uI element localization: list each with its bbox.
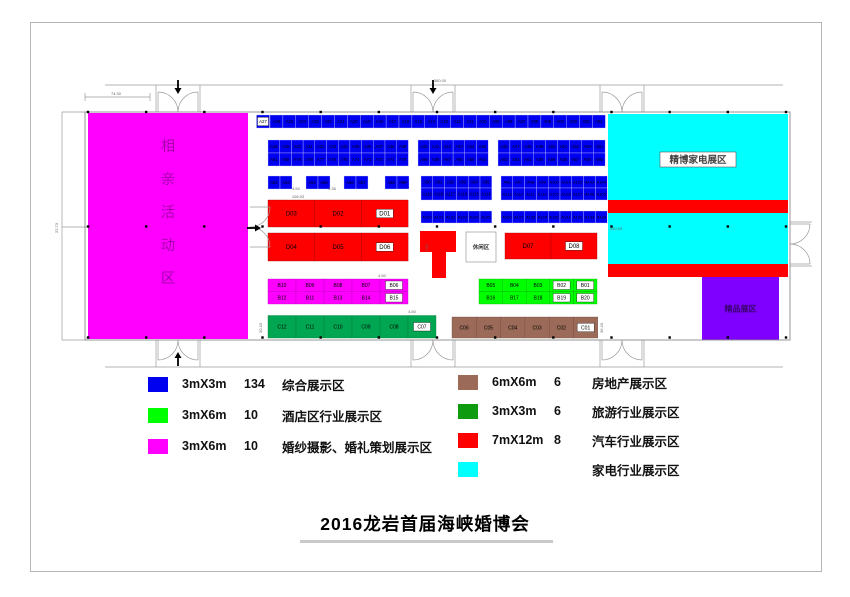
column-dot bbox=[261, 111, 263, 113]
booth-label-A83: A83 bbox=[282, 180, 290, 185]
column-dot bbox=[785, 225, 787, 227]
booth-label-A125: A125 bbox=[481, 214, 491, 219]
booth-label-A47: A47 bbox=[512, 144, 520, 149]
booth-label-A33: A33 bbox=[329, 144, 337, 149]
door-arc bbox=[250, 227, 270, 247]
booth-label-D08: D08 bbox=[568, 244, 580, 250]
booth-label-B01: B01 bbox=[581, 283, 590, 289]
booth-label-A106: A106 bbox=[585, 191, 595, 196]
booth-label-C03: C03 bbox=[532, 325, 541, 331]
booth-label-A18: A18 bbox=[376, 119, 384, 124]
booth-label-A14: A14 bbox=[428, 119, 436, 124]
booth-label-A114: A114 bbox=[481, 192, 491, 197]
column-dot bbox=[203, 336, 205, 338]
zone-label-rest-area: 休闲区 bbox=[472, 243, 490, 251]
legend-swatch bbox=[458, 375, 478, 390]
column-dot bbox=[203, 225, 205, 227]
booth-label-A51: A51 bbox=[560, 144, 568, 149]
booth-label-A29: A29 bbox=[282, 144, 290, 149]
legend-swatch bbox=[148, 377, 168, 392]
booth-label-A73: A73 bbox=[364, 157, 372, 162]
booth-label-A62: A62 bbox=[512, 157, 520, 162]
booth-label-C04: C04 bbox=[508, 325, 517, 331]
booth-label-A49: A49 bbox=[536, 144, 544, 149]
zone-label-matchmaking-hall: 相 bbox=[161, 138, 175, 154]
booth-label-A116: A116 bbox=[458, 192, 468, 197]
legend-booth-count: 10 bbox=[244, 408, 282, 422]
column-dot bbox=[436, 336, 438, 338]
column-dot bbox=[319, 225, 321, 227]
booth-label-C09: C09 bbox=[361, 325, 370, 331]
door-arc bbox=[178, 340, 198, 360]
booth-label-C12: C12 bbox=[277, 325, 286, 331]
expo-floorplan-page: 相亲活动区精品展区休闲区精博家电展区A27A26A25A24A23A22A21A… bbox=[0, 0, 850, 597]
column-dot bbox=[727, 111, 729, 113]
booth-label-A132: A132 bbox=[573, 214, 583, 219]
booth-label-A81: A81 bbox=[270, 157, 278, 162]
booth-label-A99: A99 bbox=[539, 179, 547, 184]
column-dot bbox=[785, 111, 787, 113]
legend-booth-size: 3mX6m bbox=[182, 408, 244, 422]
door-arc bbox=[433, 340, 453, 360]
booth-label-A34: A34 bbox=[340, 144, 348, 149]
legend-zone-label: 家电行业展示区 bbox=[592, 460, 680, 479]
door-arc bbox=[622, 340, 642, 360]
booth-label-A17: A17 bbox=[389, 119, 397, 124]
legend-booth-size: 6mX6m bbox=[492, 375, 554, 389]
booth-label-A126: A126 bbox=[502, 214, 512, 219]
entrance-arrow-icon bbox=[177, 80, 179, 88]
booth-label-A60: A60 bbox=[536, 157, 544, 162]
booth-label-B17: B17 bbox=[510, 296, 519, 302]
door-arc bbox=[158, 92, 178, 112]
booth-label-A43: A43 bbox=[455, 144, 463, 149]
booth-label-A58: A58 bbox=[560, 157, 568, 162]
column-dot bbox=[87, 225, 89, 227]
booth-label-B06: B06 bbox=[390, 283, 399, 289]
booth-label-A12: A12 bbox=[453, 119, 461, 124]
booth-label-B11: B11 bbox=[306, 296, 315, 302]
dimension-label: 30.43 bbox=[258, 322, 263, 333]
zone-label-purple-zone: 精品展区 bbox=[725, 303, 757, 313]
booth-label-A27: A27 bbox=[259, 119, 267, 124]
zone-label-matchmaking-hall: 动 bbox=[161, 237, 175, 253]
booth-label-A77: A77 bbox=[317, 157, 325, 162]
column-dot bbox=[668, 336, 670, 338]
booth-label-A103: A103 bbox=[585, 179, 595, 184]
booth-label-A85: A85 bbox=[320, 180, 328, 185]
booth-label-A133: A133 bbox=[585, 214, 595, 219]
booth-label-A87: A87 bbox=[358, 180, 366, 185]
booth-label-A74: A74 bbox=[352, 157, 360, 162]
legend-booth-count: 8 bbox=[554, 433, 592, 447]
column-dot bbox=[261, 225, 263, 227]
column-dot bbox=[319, 336, 321, 338]
booth-label-A117: A117 bbox=[446, 192, 456, 197]
column-dot bbox=[494, 111, 496, 113]
booth-label-A39: A39 bbox=[399, 144, 407, 149]
booth-label-A131: A131 bbox=[561, 214, 571, 219]
entrance-arrow-icon bbox=[175, 88, 182, 94]
booth-label-A104: A104 bbox=[597, 179, 607, 184]
booth-label-A91: A91 bbox=[435, 180, 443, 185]
booth-label-B18: B18 bbox=[534, 296, 543, 302]
booth-label-B12: B12 bbox=[278, 296, 287, 302]
booth-label-A42: A42 bbox=[444, 144, 452, 149]
legend-booth-count: 10 bbox=[244, 439, 282, 453]
legend-item: 3mX3m6旅游行业展示区 bbox=[458, 403, 680, 419]
booth-label-A121: A121 bbox=[434, 214, 444, 219]
booth-label-A70: A70 bbox=[399, 157, 407, 162]
booth-label-B05: B05 bbox=[486, 283, 495, 289]
booth-label-A108: A108 bbox=[561, 191, 571, 196]
booth-label-A24: A24 bbox=[299, 119, 307, 124]
legend-booth-size: 3mX3m bbox=[182, 377, 244, 391]
column-dot bbox=[552, 111, 554, 113]
booth-label-A128: A128 bbox=[526, 214, 536, 219]
booth-label-A53: A53 bbox=[584, 144, 592, 149]
booth-label-A31: A31 bbox=[305, 144, 313, 149]
zone-label-appliance-label-box: 精博家电展区 bbox=[669, 154, 727, 166]
dimension-label: 22.73 bbox=[54, 222, 59, 233]
booth-label-A63: A63 bbox=[500, 157, 508, 162]
booth-label-B02: B02 bbox=[557, 283, 566, 289]
booth-label-A55: A55 bbox=[595, 157, 603, 162]
booth-label-C05: C05 bbox=[484, 325, 493, 331]
legend-zone-label: 旅游行业展示区 bbox=[592, 402, 680, 421]
door-arc bbox=[622, 92, 642, 112]
booth-label-C02: C02 bbox=[557, 325, 566, 331]
booth-label-A03: A03 bbox=[569, 119, 577, 124]
door-arc bbox=[433, 92, 453, 112]
dimension-label: 240.53 bbox=[610, 226, 623, 231]
booth-label-A20: A20 bbox=[350, 119, 358, 124]
legend-item: 家电行业展示区 bbox=[458, 461, 680, 477]
booth-label-A110: A110 bbox=[538, 191, 548, 196]
booth-label-A96: A96 bbox=[503, 179, 511, 184]
booth-label-A118: A118 bbox=[434, 192, 444, 197]
booth-label-A41: A41 bbox=[432, 144, 440, 149]
booth-label-A45: A45 bbox=[479, 144, 487, 149]
booth-label-A80: A80 bbox=[282, 157, 290, 162]
legend-zone-label: 汽车行业展示区 bbox=[592, 431, 680, 450]
booth-label-A88: A88 bbox=[387, 180, 395, 185]
booth-label-A71: A71 bbox=[387, 157, 395, 162]
booth-label-B09: B09 bbox=[306, 283, 315, 289]
door-arc bbox=[790, 224, 810, 244]
legend-right-column: 6mX6m6房地产展示区3mX3m6旅游行业展示区7mX12m8汽车行业展示区家… bbox=[458, 374, 680, 477]
column-dot bbox=[610, 336, 612, 338]
column-dot bbox=[378, 336, 380, 338]
column-dot bbox=[203, 111, 205, 113]
column-dot bbox=[319, 111, 321, 113]
booth-label-A25: A25 bbox=[286, 119, 294, 124]
legend-item: 3mX6m10酒店区行业展示区 bbox=[148, 407, 432, 423]
booth-label-A115: A115 bbox=[469, 192, 479, 197]
column-dot bbox=[727, 336, 729, 338]
booth-label-B16: B16 bbox=[486, 296, 495, 302]
zone-label-matchmaking-hall: 活 bbox=[161, 204, 175, 220]
legend-item: 6mX6m6房地产展示区 bbox=[458, 374, 680, 390]
legend-zone-label: 婚纱摄影、婚礼策划展示区 bbox=[282, 437, 432, 456]
booth-label-A107: A107 bbox=[573, 191, 583, 196]
booth-label-A32: A32 bbox=[317, 144, 325, 149]
booth-label-A98: A98 bbox=[527, 179, 535, 184]
booth-label-A68: A68 bbox=[432, 157, 440, 162]
dimension-label: 36.43 bbox=[599, 322, 604, 333]
booth-label-A101: A101 bbox=[561, 179, 571, 184]
booth-label-A69: A69 bbox=[420, 157, 428, 162]
booth-label-A67: A67 bbox=[444, 157, 452, 162]
booth-label-D06: D06 bbox=[379, 245, 391, 251]
booth-label-A02: A02 bbox=[582, 119, 590, 124]
booth-label-B07: B07 bbox=[362, 283, 371, 289]
booth-label-D03: D03 bbox=[286, 212, 298, 218]
door-arc bbox=[413, 340, 433, 360]
booth-label-A84: A84 bbox=[308, 180, 316, 185]
booth-label-A82: A82 bbox=[270, 180, 278, 185]
booth-label-A54: A54 bbox=[595, 144, 603, 149]
booth-label-B10: B10 bbox=[278, 283, 287, 289]
booth-label-A75: A75 bbox=[340, 157, 348, 162]
booth-label-A89: A89 bbox=[399, 180, 407, 185]
column-dot bbox=[145, 225, 147, 227]
booth-label-A124: A124 bbox=[469, 214, 479, 219]
legend-item: 3mX6m10婚纱摄影、婚礼策划展示区 bbox=[148, 438, 432, 454]
dimension-label: 7.62 bbox=[424, 243, 429, 252]
column-dot bbox=[378, 111, 380, 113]
column-dot bbox=[727, 225, 729, 227]
legend-swatch bbox=[458, 462, 478, 477]
booth-label-A119: A119 bbox=[422, 192, 432, 197]
booth-label-C11: C11 bbox=[306, 325, 315, 331]
booth-label-A52: A52 bbox=[572, 144, 580, 149]
legend-booth-size: 7mX12m bbox=[492, 433, 554, 447]
door-arc bbox=[178, 92, 198, 112]
legend-swatch bbox=[458, 404, 478, 419]
booth-label-A86: A86 bbox=[346, 180, 354, 185]
booth-label-B08: B08 bbox=[334, 283, 343, 289]
booth-label-A37: A37 bbox=[375, 144, 383, 149]
door-arc bbox=[790, 244, 810, 264]
booth-label-A30: A30 bbox=[294, 144, 302, 149]
column-dot bbox=[494, 336, 496, 338]
legend-booth-size: 3mX6m bbox=[182, 439, 244, 453]
booth-label-A64: A64 bbox=[479, 157, 487, 162]
legend-zone-label: 酒店区行业展示区 bbox=[282, 406, 382, 425]
zone-stage-stem bbox=[432, 252, 446, 278]
booth-label-A10: A10 bbox=[479, 119, 487, 124]
column-dot bbox=[87, 336, 89, 338]
booth-label-A97: A97 bbox=[515, 179, 523, 184]
booth-label-A123: A123 bbox=[458, 214, 468, 219]
entrance-arrow-icon bbox=[175, 352, 182, 358]
booth-label-A22: A22 bbox=[324, 119, 332, 124]
booth-label-A15: A15 bbox=[415, 119, 423, 124]
dimension-label: 4.36 bbox=[328, 186, 337, 191]
legend-swatch bbox=[148, 439, 168, 454]
column-dot bbox=[668, 111, 670, 113]
booth-label-B03: B03 bbox=[534, 283, 543, 289]
door-arc bbox=[250, 207, 270, 227]
booth-label-A28: A28 bbox=[270, 144, 278, 149]
booth-label-C06: C06 bbox=[460, 325, 469, 331]
booth-label-A129: A129 bbox=[538, 214, 548, 219]
zone-label-matchmaking-hall: 亲 bbox=[161, 171, 175, 187]
booth-label-A08: A08 bbox=[505, 119, 513, 124]
booth-label-A78: A78 bbox=[305, 157, 313, 162]
entrance-arrow-icon bbox=[247, 227, 255, 229]
booth-label-A50: A50 bbox=[548, 144, 556, 149]
booth-label-A76: A76 bbox=[329, 157, 337, 162]
zone-red-stripe-2 bbox=[608, 264, 788, 277]
column-dot bbox=[785, 336, 787, 338]
dimension-label: 4.50 bbox=[378, 273, 387, 278]
booth-label-A36: A36 bbox=[364, 144, 372, 149]
booth-label-A105: A105 bbox=[597, 191, 607, 196]
booth-label-D02: D02 bbox=[333, 212, 345, 218]
legend-item: 3mX3m134综合展示区 bbox=[148, 376, 432, 392]
booth-label-A90: A90 bbox=[423, 180, 431, 185]
floor-plan: 相亲活动区精品展区休闲区精博家电展区A27A26A25A24A23A22A21A… bbox=[0, 0, 850, 597]
booth-label-D05: D05 bbox=[333, 245, 345, 251]
legend-item: 7mX12m8汽车行业展示区 bbox=[458, 432, 680, 448]
booth-label-A46: A46 bbox=[500, 144, 508, 149]
booth-label-A93: A93 bbox=[459, 180, 467, 185]
booth-label-A48: A48 bbox=[524, 144, 532, 149]
booth-label-A100: A100 bbox=[549, 179, 559, 184]
zone-appliance-zone-lower bbox=[608, 213, 788, 264]
booth-label-D07: D07 bbox=[522, 244, 534, 250]
dimension-label: 4.50 bbox=[408, 309, 417, 314]
entrance-arrow-icon bbox=[177, 358, 179, 366]
column-dot bbox=[436, 111, 438, 113]
booth-label-A120: A120 bbox=[422, 214, 432, 219]
page-title: 2016龙岩首届海峡婚博会 bbox=[0, 511, 850, 536]
booth-label-A11: A11 bbox=[466, 119, 474, 124]
booth-label-A94: A94 bbox=[470, 180, 478, 185]
booth-label-B13: B13 bbox=[334, 296, 343, 302]
booth-label-C08: C08 bbox=[389, 325, 398, 331]
column-dot bbox=[145, 336, 147, 338]
legend-booth-count: 6 bbox=[554, 375, 592, 389]
column-dot bbox=[145, 111, 147, 113]
dimension-label: 4.50 bbox=[292, 186, 301, 191]
booth-label-A61: A61 bbox=[524, 157, 532, 162]
booth-label-A127: A127 bbox=[514, 214, 524, 219]
column-dot bbox=[436, 225, 438, 227]
booth-label-B04: B04 bbox=[510, 283, 519, 289]
booth-label-D04: D04 bbox=[286, 245, 298, 251]
booth-label-A07: A07 bbox=[518, 119, 526, 124]
booth-label-A112: A112 bbox=[514, 191, 524, 196]
booth-label-A05: A05 bbox=[544, 119, 552, 124]
legend-left-column: 3mX3m134综合展示区3mX6m10酒店区行业展示区3mX6m10婚纱摄影、… bbox=[148, 376, 432, 454]
dimension-label: 74.30 bbox=[111, 91, 122, 96]
booth-label-A59: A59 bbox=[548, 157, 556, 162]
booth-label-A04: A04 bbox=[557, 119, 565, 124]
booth-label-A26: A26 bbox=[273, 119, 281, 124]
legend-booth-count: 6 bbox=[554, 404, 592, 418]
door-arc bbox=[602, 340, 622, 360]
column-dot bbox=[494, 225, 496, 227]
door-arc bbox=[158, 340, 178, 360]
booth-label-A19: A19 bbox=[363, 119, 371, 124]
booth-label-A102: A102 bbox=[573, 179, 583, 184]
legend-zone-label: 综合展示区 bbox=[282, 375, 345, 394]
legend-zone-label: 房地产展示区 bbox=[592, 373, 667, 392]
booth-label-A09: A09 bbox=[492, 119, 500, 124]
booth-label-B19: B19 bbox=[557, 296, 566, 302]
booth-label-A65: A65 bbox=[467, 157, 475, 162]
booth-label-A38: A38 bbox=[387, 144, 395, 149]
column-dot bbox=[552, 336, 554, 338]
booth-label-A66: A66 bbox=[455, 157, 463, 162]
booth-label-A72: A72 bbox=[375, 157, 383, 162]
booth-label-A40: A40 bbox=[420, 144, 428, 149]
column-dot bbox=[378, 225, 380, 227]
booth-label-C10: C10 bbox=[333, 325, 342, 331]
column-dot bbox=[87, 111, 89, 113]
booth-label-C01: C01 bbox=[581, 325, 590, 331]
zone-label-matchmaking-hall: 区 bbox=[161, 270, 175, 286]
column-dot bbox=[552, 225, 554, 227]
booth-label-A109: A109 bbox=[549, 191, 559, 196]
booth-label-A130: A130 bbox=[549, 214, 559, 219]
booth-label-A122: A122 bbox=[446, 214, 456, 219]
booth-label-A56: A56 bbox=[584, 157, 592, 162]
booth-label-B14: B14 bbox=[362, 296, 371, 302]
booth-label-A92: A92 bbox=[447, 180, 455, 185]
booth-label-A35: A35 bbox=[352, 144, 360, 149]
booth-label-D01: D01 bbox=[379, 212, 391, 218]
dimension-label: 360.00 bbox=[434, 78, 447, 83]
entrance-arrow-icon bbox=[430, 88, 437, 94]
legend-swatch bbox=[458, 433, 478, 448]
dimension-label: 106.53 bbox=[292, 194, 305, 199]
booth-label-A23: A23 bbox=[311, 119, 319, 124]
booth-label-A06: A06 bbox=[531, 119, 539, 124]
column-dot bbox=[668, 225, 670, 227]
booth-label-B15: B15 bbox=[390, 296, 399, 302]
booth-label-A134: A134 bbox=[597, 214, 607, 219]
legend-booth-count: 134 bbox=[244, 377, 282, 391]
column-dot bbox=[610, 111, 612, 113]
booth-label-A79: A79 bbox=[294, 157, 302, 162]
booth-label-A95: A95 bbox=[482, 180, 490, 185]
door-arc bbox=[602, 92, 622, 112]
booth-label-A113: A113 bbox=[502, 191, 512, 196]
booth-label-B20: B20 bbox=[581, 296, 590, 302]
booth-label-A111: A111 bbox=[526, 191, 536, 196]
booth-label-C07: C07 bbox=[417, 325, 426, 331]
booth-label-A01: A01 bbox=[595, 119, 603, 124]
door-arc bbox=[413, 92, 433, 112]
legend-swatch bbox=[148, 408, 168, 423]
column-dot bbox=[261, 336, 263, 338]
booth-label-A44: A44 bbox=[467, 144, 475, 149]
booth-label-A57: A57 bbox=[572, 157, 580, 162]
legend-booth-size: 3mX3m bbox=[492, 404, 554, 418]
title-underline bbox=[300, 540, 553, 543]
zone-red-stripe-1 bbox=[608, 200, 788, 213]
booth-label-A13: A13 bbox=[440, 119, 448, 124]
booth-label-A21: A21 bbox=[337, 119, 345, 124]
booth-label-A16: A16 bbox=[402, 119, 410, 124]
